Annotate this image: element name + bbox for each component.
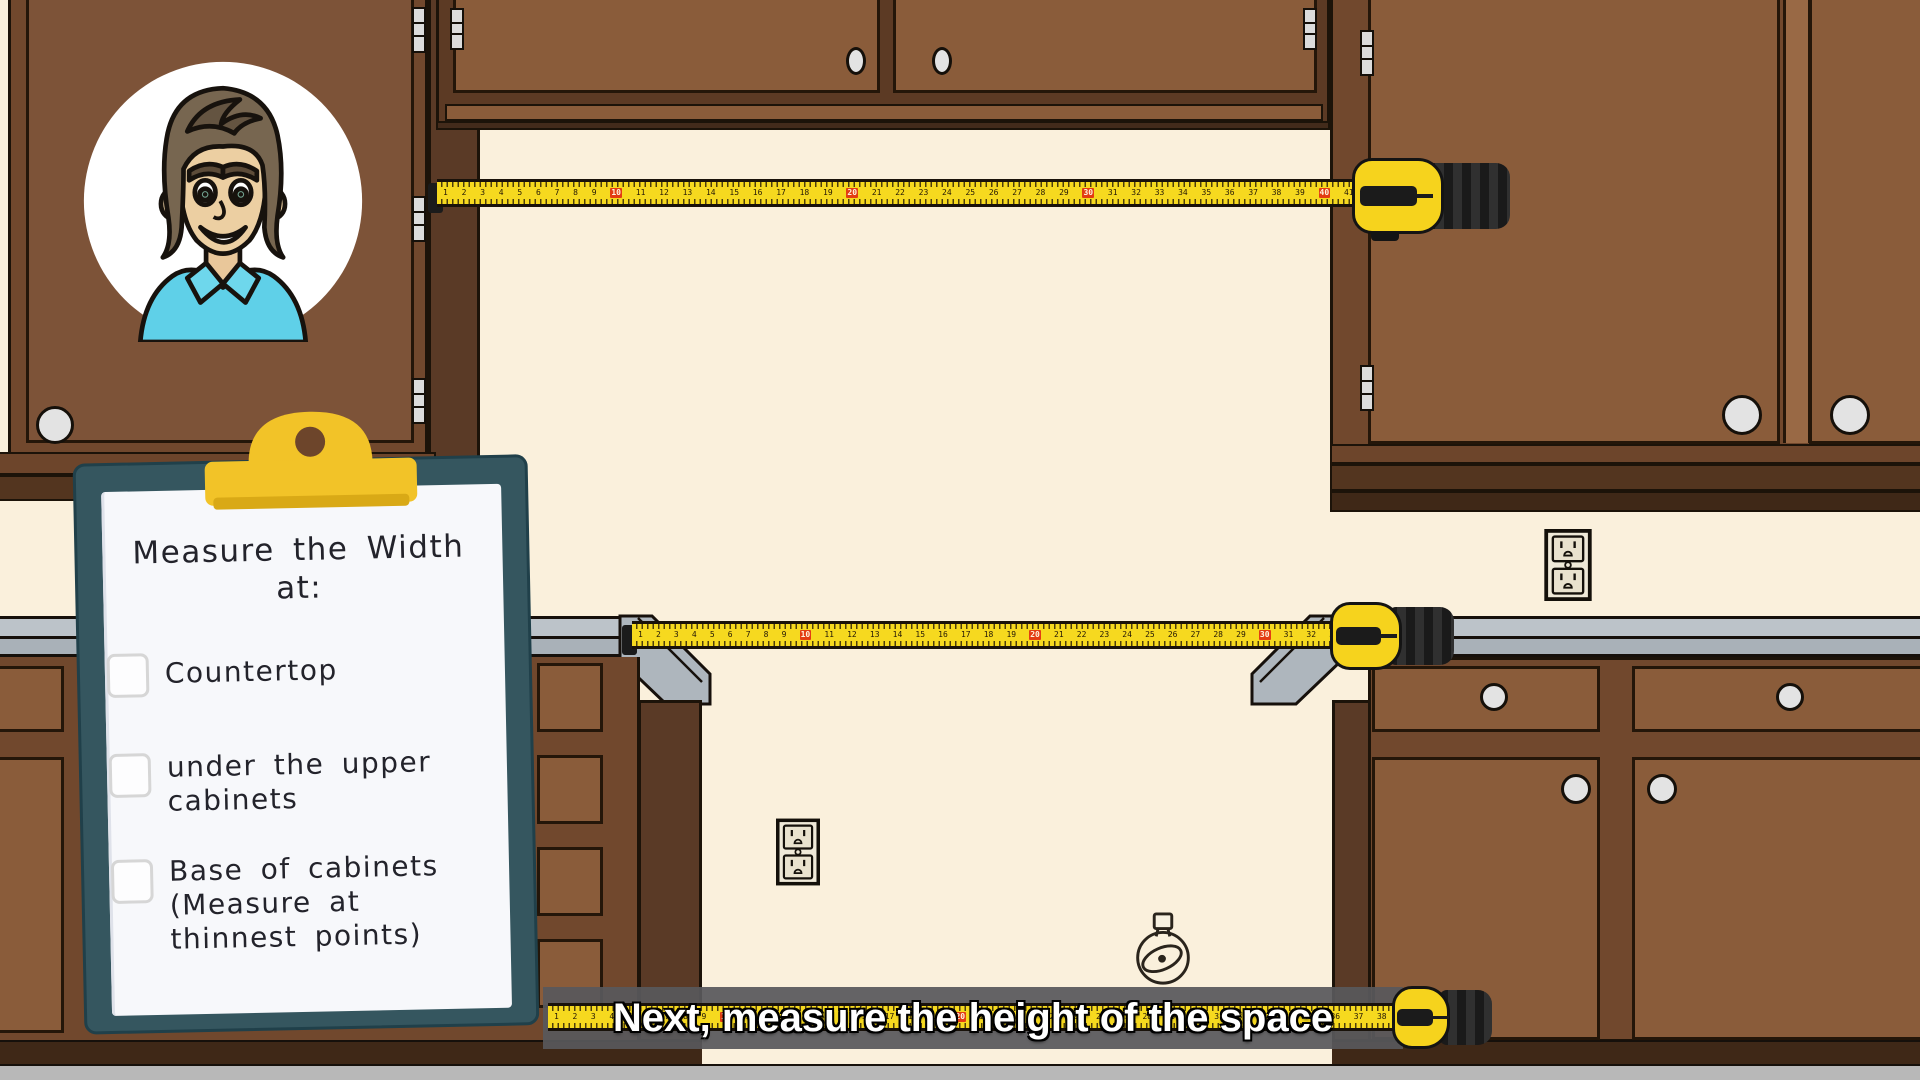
upper-middle-molding-shadow	[436, 121, 1330, 130]
lower-left-end-drawer-3	[537, 847, 603, 916]
checklist-item-label: Base of cabinets (Measure at thinnest po…	[169, 849, 466, 957]
video-caption: Next, measure the height of the space	[543, 988, 1403, 1048]
upper-middle-right-door	[893, 0, 1317, 93]
upper-right-molding-base	[1330, 491, 1920, 512]
upper-right-partial-door	[1809, 0, 1920, 444]
hinge-icon	[412, 7, 426, 53]
hinge-icon	[1360, 30, 1374, 76]
checkbox-under-upper-cabinets	[109, 753, 152, 798]
measuring-tape-middle: 1234567891011121314151617181920212223242…	[632, 621, 1345, 649]
tape-measure-sketch-icon	[1131, 911, 1195, 987]
tape-measure-body	[1352, 158, 1510, 234]
hinge-icon	[450, 8, 464, 50]
checklist-item-label: under the upper cabinets	[167, 745, 468, 819]
floor	[0, 1064, 1920, 1080]
upper-middle-right-knob	[932, 47, 952, 75]
drawer-knob	[1480, 683, 1508, 711]
lower-left-door-sliver	[0, 757, 64, 1033]
lower-left-end-drawer-1	[537, 663, 603, 732]
drawer-knob	[1776, 683, 1804, 711]
checklist-item-label: Countertop	[165, 651, 466, 691]
lower-left-drawer-sliver	[0, 666, 64, 732]
kitchen-scene: 1234567891011121314151617181920212223242…	[0, 0, 1920, 1080]
upper-middle-molding	[445, 104, 1323, 121]
upper-right-door-knob	[1722, 395, 1762, 435]
tape-measure-body	[1330, 602, 1454, 670]
upper-right-door-divider	[1783, 0, 1811, 443]
tape-numbers: 1234567891011121314151617181920212223242…	[443, 185, 1354, 201]
hinge-icon	[1303, 8, 1317, 50]
upper-right-partial-door-knob	[1830, 395, 1870, 435]
clipboard-clip	[189, 399, 431, 516]
clipboard: Measure the Width at: Countertop under t…	[53, 395, 546, 1050]
tape-numbers: 1234567891011121314151617181920212223242…	[638, 627, 1339, 643]
lower-right-door-right	[1632, 757, 1920, 1040]
hinge-icon	[1360, 365, 1374, 411]
checklist-title: Measure the Width	[114, 528, 483, 572]
tape-measure-body	[1392, 986, 1492, 1049]
measuring-tape-top: 1234567891011121314151617181920212223242…	[437, 179, 1360, 207]
outlet-icon	[776, 818, 820, 886]
upper-middle-left-knob	[846, 47, 866, 75]
upper-right-molding-shadow	[1330, 464, 1920, 491]
upper-right-molding	[1330, 444, 1920, 464]
upper-middle-left-door	[453, 0, 880, 93]
outlet-icon	[1543, 529, 1593, 601]
presenter-avatar	[82, 60, 364, 342]
cabinet-door-knob	[1647, 774, 1677, 804]
cabinet-door-knob	[1561, 774, 1591, 804]
checkbox-base-of-cabinets	[111, 859, 154, 904]
checkbox-countertop	[107, 653, 150, 698]
hinge-icon	[412, 196, 426, 242]
checklist-title-suffix: at:	[115, 566, 484, 610]
lower-left-end-drawer-2	[537, 755, 603, 824]
